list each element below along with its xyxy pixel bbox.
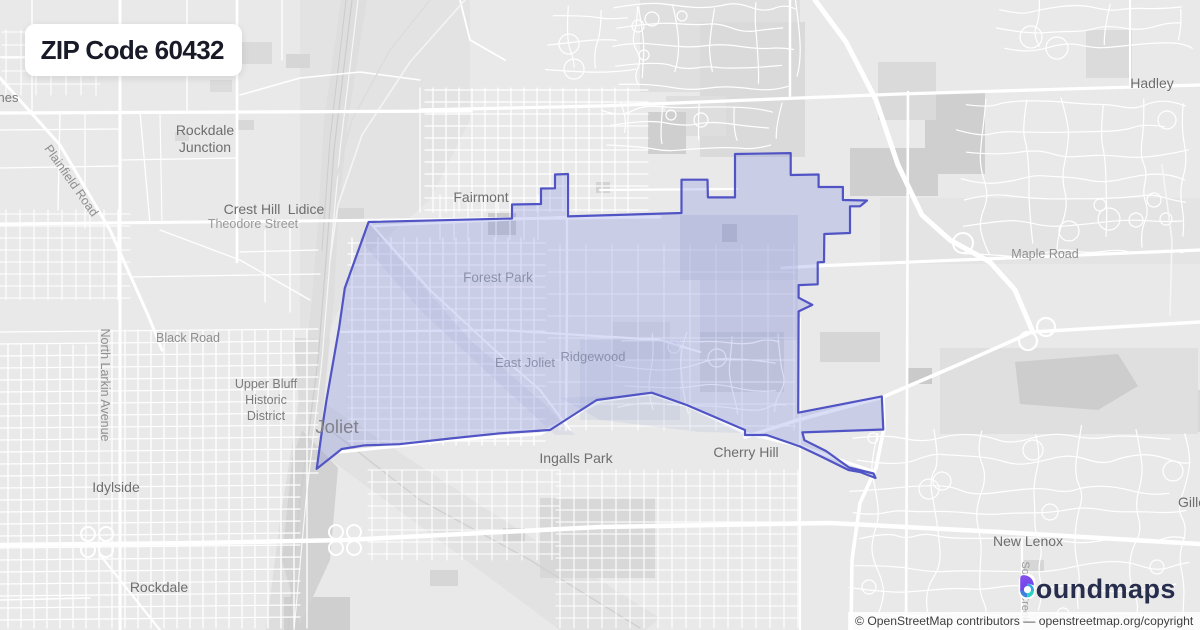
svg-text:Historic: Historic [245,393,287,407]
svg-text:Crest Hill: Crest Hill [224,201,281,217]
svg-text:North Larkin Avenue: North Larkin Avenue [98,328,112,441]
svg-text:Lidice: Lidice [288,201,325,217]
svg-text:Maple Road: Maple Road [1011,247,1078,261]
svg-text:Upper Bluff: Upper Bluff [235,377,298,391]
svg-text:East Joliet: East Joliet [495,355,555,370]
svg-text:Rockdale: Rockdale [176,122,235,138]
svg-text:Hadley: Hadley [1130,75,1174,91]
svg-text:nes: nes [0,90,19,105]
svg-text:Fairmont: Fairmont [453,189,508,205]
svg-text:Cherry Hill: Cherry Hill [713,444,778,460]
svg-text:Ingalls Park: Ingalls Park [539,450,613,466]
svg-text:Gille: Gille [1178,494,1200,510]
svg-text:Forest Park: Forest Park [463,270,533,285]
svg-text:Joliet: Joliet [315,416,358,437]
svg-text:Rockdale: Rockdale [130,579,189,595]
svg-text:New Lenox: New Lenox [993,533,1063,549]
svg-text:Black Road: Black Road [156,331,220,345]
svg-text:Theodore Street: Theodore Street [208,217,299,231]
svg-text:District: District [247,409,286,423]
svg-text:Idylside: Idylside [92,479,140,495]
svg-text:Junction: Junction [179,139,231,155]
svg-text:Ridgewood: Ridgewood [560,349,625,364]
